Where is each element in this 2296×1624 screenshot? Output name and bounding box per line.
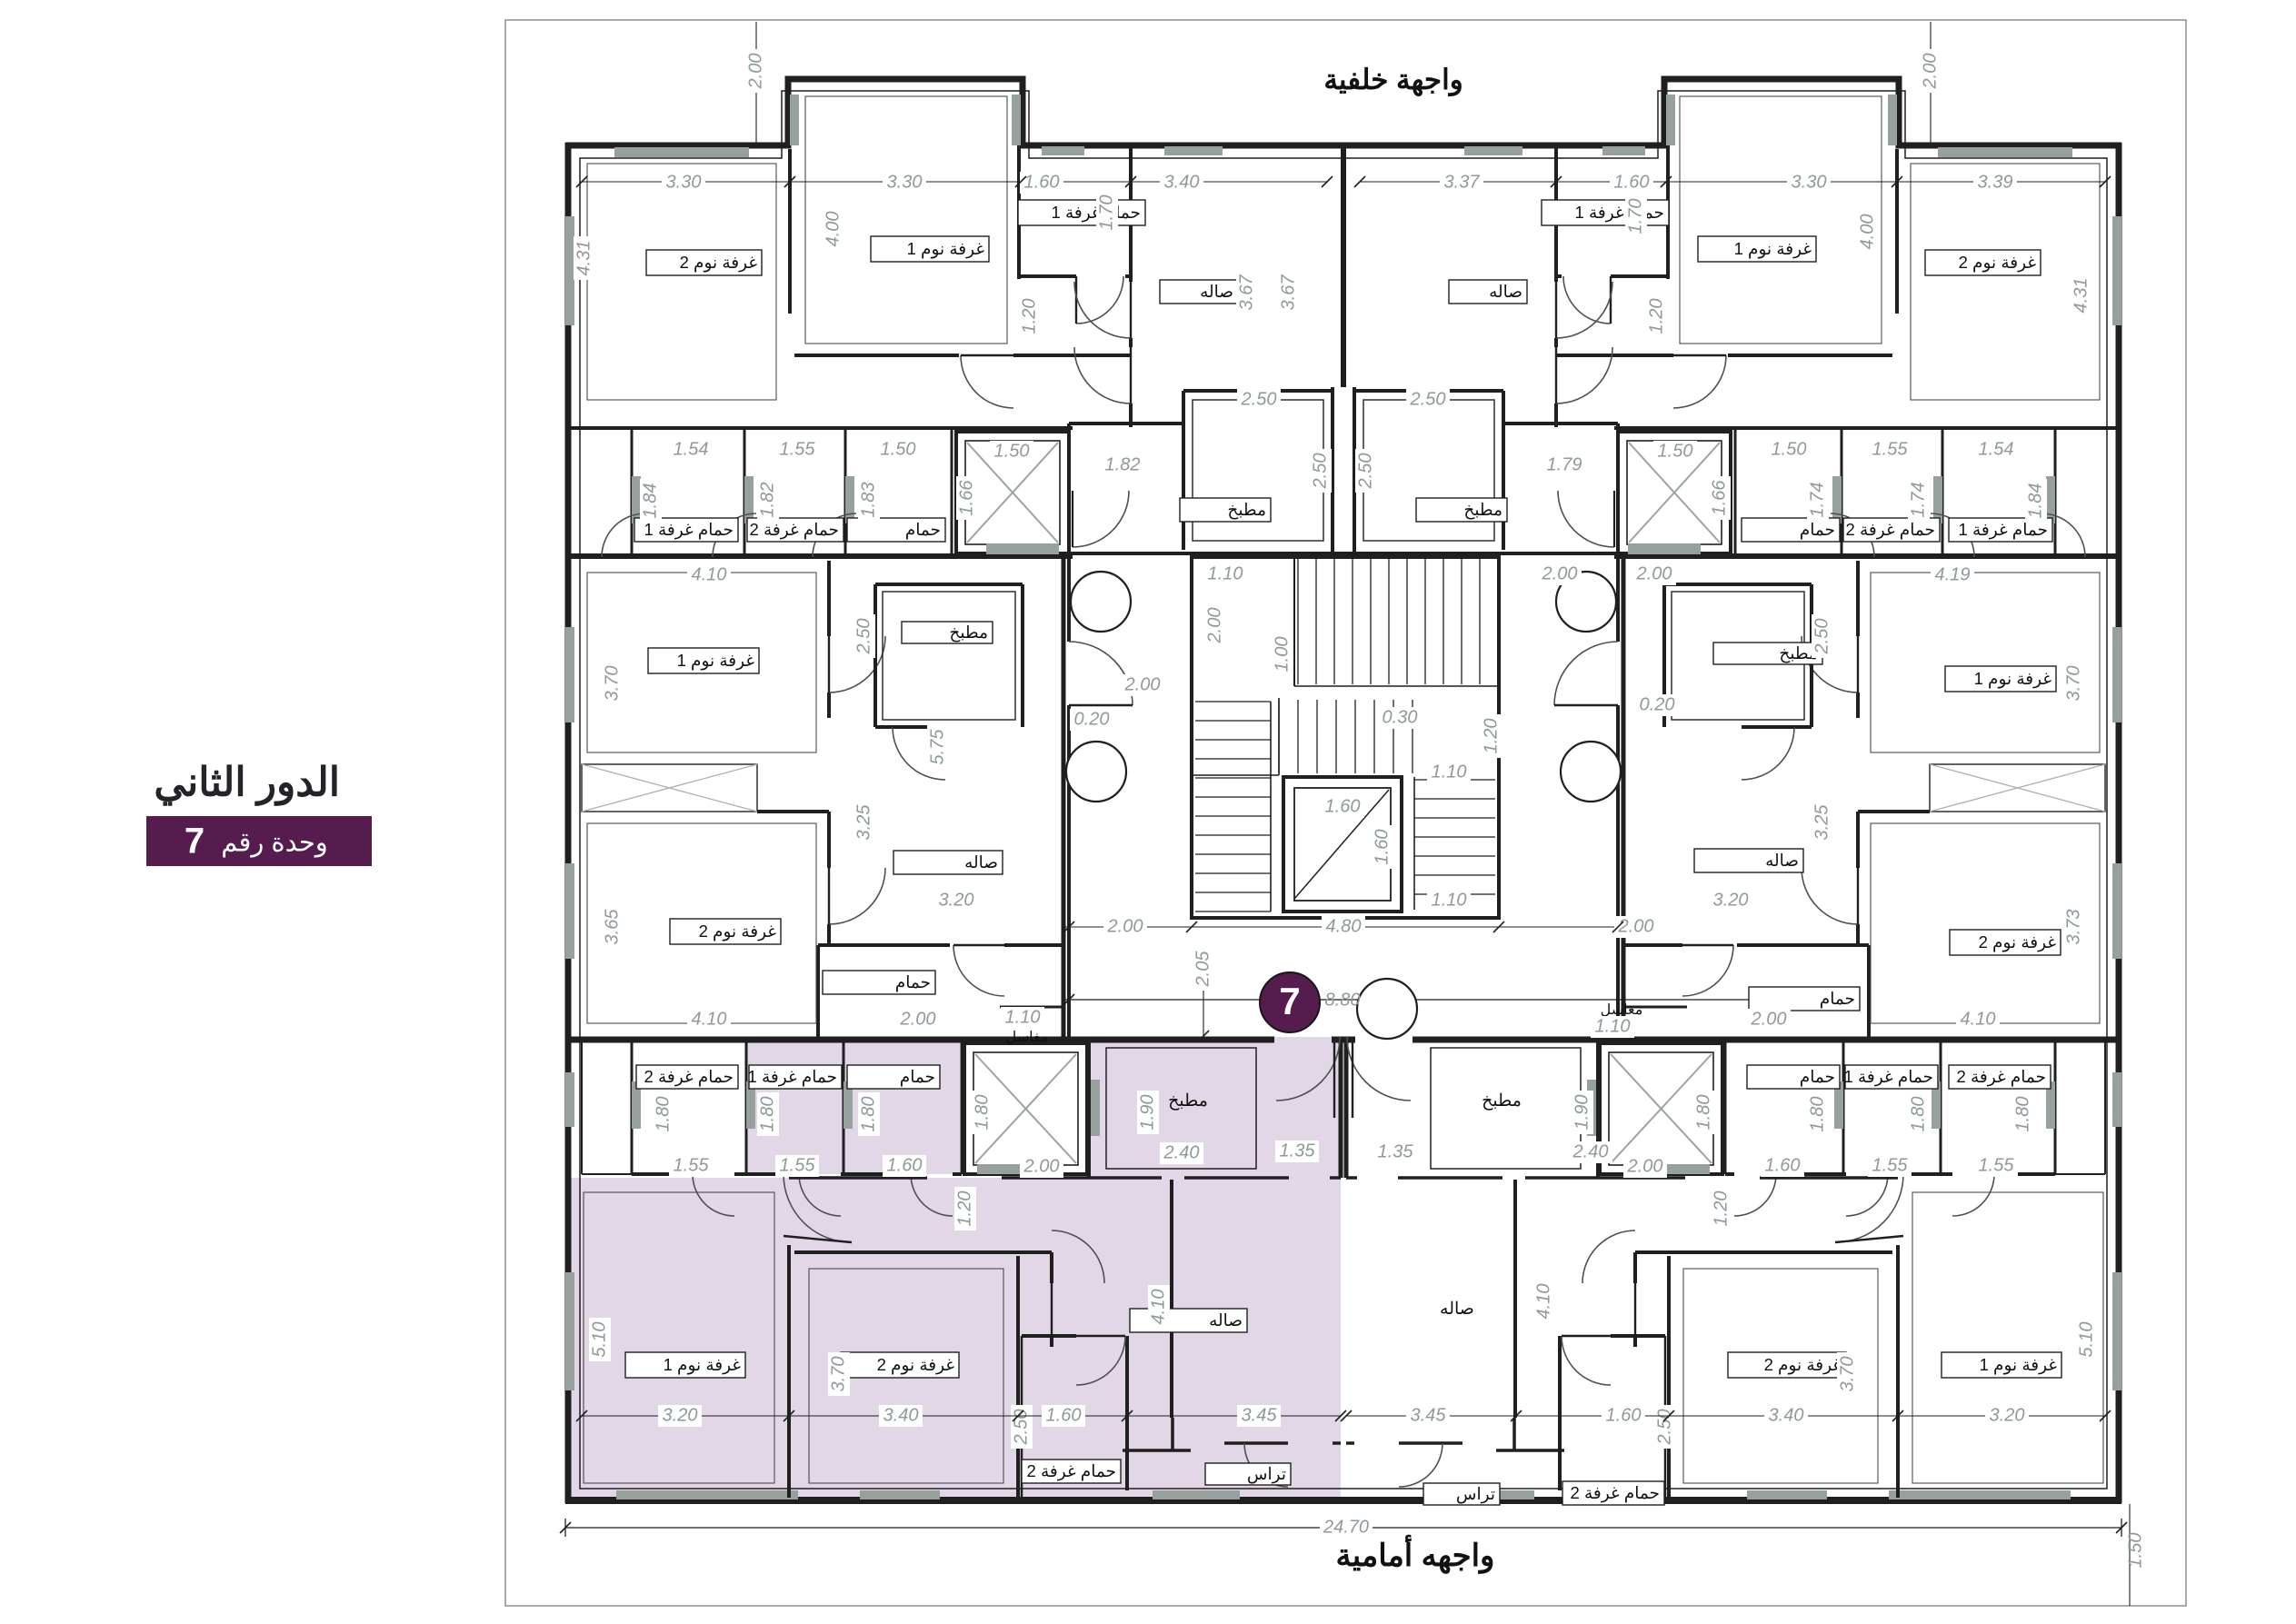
svg-text:3.30: 3.30 [1792, 172, 1827, 192]
svg-text:حمام: حمام [1800, 1067, 1835, 1087]
svg-text:1.55: 1.55 [674, 1155, 710, 1175]
svg-text:1.10: 1.10 [1432, 762, 1467, 782]
svg-text:1.60: 1.60 [1372, 830, 1392, 865]
svg-text:تراس: تراس [1247, 1464, 1286, 1484]
svg-text:1.80: 1.80 [757, 1097, 777, 1132]
svg-text:4.10: 4.10 [692, 1009, 727, 1029]
svg-text:0.30: 0.30 [1383, 707, 1418, 727]
svg-text:3.25: 3.25 [1812, 804, 1832, 841]
svg-text:24.70: 24.70 [1323, 1517, 1369, 1537]
svg-text:2.00: 2.00 [1023, 1156, 1060, 1176]
svg-text:2.00: 2.00 [1124, 674, 1161, 694]
svg-text:غرفة نوم 1: غرفة نوم 1 [677, 651, 755, 671]
svg-text:1.10: 1.10 [1005, 1007, 1041, 1027]
svg-text:2.50: 2.50 [1654, 1410, 1674, 1446]
svg-text:1.55: 1.55 [780, 439, 816, 459]
svg-text:1.80: 1.80 [653, 1097, 673, 1132]
svg-text:حمام: حمام [1800, 520, 1835, 540]
svg-text:غرفة نوم 1: غرفة نوم 1 [664, 1355, 742, 1375]
svg-text:1.55: 1.55 [1872, 439, 1909, 459]
svg-text:1.80: 1.80 [972, 1095, 992, 1131]
svg-text:3.20: 3.20 [1713, 890, 1749, 910]
svg-text:2.00: 2.00 [745, 54, 765, 90]
svg-text:تراس: تراس [1456, 1484, 1495, 1504]
svg-text:حمام غرفة 2: حمام غرفة 2 [750, 520, 839, 540]
svg-text:1.50: 1.50 [881, 439, 916, 459]
svg-text:2.00: 2.00 [1627, 1156, 1663, 1176]
svg-text:1.55: 1.55 [780, 1155, 816, 1175]
svg-text:1.80: 1.80 [1908, 1097, 1928, 1132]
svg-text:1.66: 1.66 [956, 480, 976, 516]
svg-text:1.10: 1.10 [1595, 1016, 1631, 1036]
svg-text:1.84: 1.84 [2025, 483, 2045, 519]
svg-text:واجهة خلفية: واجهة خلفية [1323, 64, 1462, 97]
svg-text:2.00: 2.00 [1751, 1009, 1787, 1029]
svg-text:1.70: 1.70 [1096, 195, 1116, 231]
svg-text:حمام غرفة 1: حمام غرفة 1 [1844, 1067, 1933, 1087]
svg-text:1.66: 1.66 [1709, 480, 1729, 516]
svg-text:حمام غرفة 2: حمام غرفة 2 [1846, 520, 1935, 540]
svg-text:2.00: 2.00 [1107, 916, 1143, 936]
svg-text:غرفة نوم 2: غرفة نوم 2 [1979, 932, 2057, 952]
svg-text:مطبخ: مطبخ [1463, 500, 1502, 520]
svg-text:غرفة نوم 1: غرفة نوم 1 [1734, 239, 1812, 259]
svg-text:حمام: حمام [1820, 989, 1855, 1009]
svg-text:وحدة رقم: وحدة رقم [221, 829, 328, 859]
svg-text:1.20: 1.20 [1711, 1191, 1731, 1227]
svg-text:غرفة نوم 1: غرفة نوم 1 [1980, 1355, 2058, 1375]
svg-text:3.37: 3.37 [1444, 172, 1481, 192]
svg-text:0.20: 0.20 [1074, 709, 1110, 729]
svg-text:1.10: 1.10 [1432, 890, 1467, 910]
svg-text:3.70: 3.70 [1837, 1357, 1857, 1392]
svg-text:3.67: 3.67 [1236, 274, 1256, 311]
svg-text:3.25: 3.25 [854, 804, 873, 841]
svg-text:غرفة نوم 2: غرفة نوم 2 [699, 922, 777, 942]
svg-text:3.73: 3.73 [2063, 910, 2083, 945]
svg-text:8.80: 8.80 [1325, 990, 1361, 1010]
svg-text:3.45: 3.45 [1411, 1405, 1447, 1425]
svg-text:2.05: 2.05 [1193, 951, 1213, 988]
svg-text:4.80: 4.80 [1326, 916, 1362, 936]
svg-text:3.70: 3.70 [2063, 666, 2083, 702]
svg-text:4.10: 4.10 [1148, 1290, 1168, 1325]
svg-text:3.40: 3.40 [1164, 172, 1200, 192]
svg-text:مطبخ: مطبخ [1482, 1091, 1522, 1111]
svg-text:1.20: 1.20 [1646, 299, 1666, 334]
svg-text:مطبخ: مطبخ [1227, 500, 1266, 520]
svg-text:غرفة نوم 2: غرفة نوم 2 [1764, 1355, 1842, 1375]
svg-text:1.35: 1.35 [1378, 1141, 1414, 1161]
svg-text:1.50: 1.50 [1658, 441, 1693, 461]
svg-text:حمام غرفة 1: حمام غرفة 1 [748, 1067, 837, 1087]
svg-text:2.50: 2.50 [1812, 619, 1832, 655]
svg-text:صاله: صاله [1440, 1300, 1474, 1319]
svg-text:حمام: حمام [900, 1067, 935, 1087]
svg-text:2.00: 2.00 [1542, 563, 1578, 583]
svg-text:2.00: 2.00 [1920, 54, 1940, 90]
svg-text:حمام غرفة 1: حمام غرفة 1 [1959, 520, 2048, 540]
svg-text:2.00: 2.00 [1636, 563, 1672, 583]
svg-text:5.10: 5.10 [589, 1322, 609, 1358]
svg-text:3.67: 3.67 [1278, 274, 1298, 311]
svg-text:1.35: 1.35 [1280, 1141, 1316, 1161]
svg-text:حمام غرفة 2: حمام غرفة 2 [1571, 1483, 1660, 1503]
svg-text:1.80: 1.80 [858, 1097, 878, 1132]
svg-text:صاله: صاله [1209, 1310, 1243, 1330]
svg-text:مغاسل: مغاسل [1006, 1030, 1049, 1045]
svg-text:1.55: 1.55 [1979, 1155, 2015, 1175]
svg-text:3.70: 3.70 [602, 666, 622, 702]
svg-text:3.70: 3.70 [828, 1357, 848, 1392]
svg-text:4.31: 4.31 [2071, 278, 2091, 314]
svg-text:2.50: 2.50 [1011, 1410, 1031, 1446]
svg-text:غرفة نوم 2: غرفة نوم 2 [1959, 253, 2037, 273]
svg-text:3.45: 3.45 [1242, 1405, 1278, 1425]
svg-text:1.54: 1.54 [674, 439, 709, 459]
svg-text:مطبخ: مطبخ [1168, 1091, 1208, 1111]
svg-text:3.30: 3.30 [666, 172, 702, 192]
svg-text:1.60: 1.60 [1765, 1155, 1801, 1175]
svg-text:3.40: 3.40 [883, 1405, 919, 1425]
svg-text:0.20: 0.20 [1640, 694, 1675, 714]
svg-text:1.79: 1.79 [1547, 454, 1582, 474]
svg-text:3.65: 3.65 [602, 909, 622, 945]
svg-text:2.00: 2.00 [1618, 916, 1654, 936]
svg-text:1.00: 1.00 [1272, 637, 1292, 673]
svg-text:1.80: 1.80 [1807, 1097, 1827, 1132]
svg-text:2.40: 2.40 [1163, 1142, 1200, 1162]
svg-text:1.74: 1.74 [1908, 483, 1928, 518]
svg-text:4.00: 4.00 [1857, 214, 1877, 250]
svg-text:2.40: 2.40 [1572, 1141, 1609, 1161]
svg-text:1.60: 1.60 [887, 1155, 923, 1175]
svg-text:1.20: 1.20 [954, 1191, 974, 1227]
svg-text:4.10: 4.10 [1533, 1284, 1553, 1320]
svg-text:1.82: 1.82 [757, 483, 777, 518]
svg-text:5.10: 5.10 [2076, 1322, 2096, 1358]
svg-text:1.10: 1.10 [1208, 563, 1243, 583]
svg-text:1.70: 1.70 [1625, 199, 1645, 234]
svg-text:2.50: 2.50 [854, 619, 873, 655]
svg-text:غرفة نوم 2: غرفة نوم 2 [680, 253, 758, 273]
svg-text:غرفة نوم 2: غرفة نوم 2 [877, 1355, 955, 1375]
svg-text:حمام غرفة 1: حمام غرفة 1 [1575, 203, 1664, 223]
svg-text:1.50: 1.50 [1772, 439, 1807, 459]
svg-text:1.60: 1.60 [1606, 1405, 1642, 1425]
svg-text:2.50: 2.50 [1410, 389, 1446, 409]
svg-text:2.00: 2.00 [900, 1009, 936, 1029]
svg-text:1.84: 1.84 [640, 483, 660, 519]
svg-text:صاله: صاله [1489, 282, 1522, 301]
svg-text:4.00: 4.00 [823, 212, 843, 247]
svg-text:1.55: 1.55 [1872, 1155, 1909, 1175]
svg-text:1.60: 1.60 [1046, 1405, 1082, 1425]
svg-text:1.90: 1.90 [1137, 1095, 1157, 1131]
svg-text:حمام غرفة 1: حمام غرفة 1 [644, 520, 734, 540]
svg-text:3.30: 3.30 [887, 172, 923, 192]
svg-text:1.50: 1.50 [2125, 1533, 2145, 1569]
svg-text:1.90: 1.90 [1572, 1095, 1592, 1131]
svg-text:صاله: صاله [964, 852, 998, 872]
svg-text:2.50: 2.50 [1310, 453, 1330, 490]
svg-text:1.82: 1.82 [1105, 454, 1141, 474]
svg-text:حمام غرفة 2: حمام غرفة 2 [644, 1067, 734, 1087]
svg-text:1.80: 1.80 [2012, 1097, 2032, 1132]
svg-text:صاله: صاله [1765, 851, 1799, 870]
svg-text:1.60: 1.60 [1614, 172, 1650, 192]
svg-text:1.80: 1.80 [1693, 1095, 1713, 1131]
svg-text:7: 7 [185, 822, 205, 862]
svg-text:حمام غرفة 2: حمام غرفة 2 [1027, 1461, 1116, 1481]
svg-text:حمام: حمام [905, 520, 941, 540]
svg-text:1.20: 1.20 [1019, 299, 1039, 334]
svg-text:4.31: 4.31 [574, 241, 594, 276]
svg-text:2.00: 2.00 [1204, 608, 1224, 644]
svg-text:3.20: 3.20 [663, 1405, 698, 1425]
svg-text:4.19: 4.19 [1935, 564, 1971, 584]
svg-text:1.83: 1.83 [858, 483, 878, 518]
svg-text:2.50: 2.50 [1241, 389, 1277, 409]
svg-text:2.50: 2.50 [1355, 453, 1375, 490]
svg-text:1.50: 1.50 [994, 441, 1030, 461]
svg-text:1.20: 1.20 [1481, 719, 1501, 754]
svg-text:الدور الثاني: الدور الثاني [154, 761, 340, 807]
svg-text:3.20: 3.20 [939, 890, 974, 910]
svg-text:7: 7 [1279, 980, 1300, 1022]
svg-text:مطبخ: مطبخ [949, 623, 988, 643]
svg-text:غرفة نوم 1: غرفة نوم 1 [1974, 669, 2052, 689]
svg-text:4.10: 4.10 [1961, 1009, 1996, 1029]
svg-text:حمام غرفة 2: حمام غرفة 2 [1957, 1067, 2046, 1087]
svg-text:5.75: 5.75 [927, 729, 947, 765]
svg-text:1.54: 1.54 [1979, 439, 2014, 459]
svg-text:غرفة نوم 1: غرفة نوم 1 [907, 239, 985, 259]
svg-text:حمام: حمام [895, 972, 931, 992]
svg-text:1.60: 1.60 [1325, 796, 1361, 816]
svg-text:صاله: صاله [1200, 282, 1233, 301]
svg-text:3.40: 3.40 [1769, 1405, 1804, 1425]
svg-text:3.39: 3.39 [1978, 172, 2013, 192]
svg-text:1.74: 1.74 [1807, 483, 1827, 518]
svg-text:واجهه أمامية: واجهه أمامية [1336, 1535, 1495, 1574]
svg-text:4.10: 4.10 [692, 564, 727, 584]
svg-text:1.60: 1.60 [1024, 172, 1060, 192]
svg-text:3.20: 3.20 [1990, 1405, 2025, 1425]
